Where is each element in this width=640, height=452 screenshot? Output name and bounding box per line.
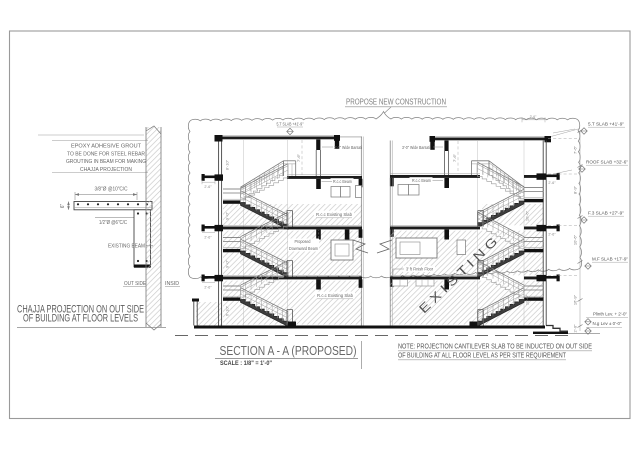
svg-text:Downward Beam: Downward Beam <box>289 246 318 251</box>
svg-text:7'-6": 7'-6" <box>452 153 457 162</box>
svg-text:R.c.c Existing Slab: R.c.c Existing Slab <box>316 212 353 217</box>
svg-text:2'-6": 2'-6" <box>204 286 212 290</box>
svg-text:TO BE DONE FOR STEEL REBAR: TO BE DONE FOR STEEL REBAR <box>67 151 145 157</box>
svg-text:2'-6": 2'-6" <box>204 236 212 240</box>
svg-text:2'-6": 2'-6" <box>548 181 556 185</box>
svg-text:6'-10": 6'-10" <box>225 305 230 316</box>
svg-text:3' ft Finish Floor: 3' ft Finish Floor <box>406 267 434 272</box>
svg-text:2'-6": 2'-6" <box>530 115 538 119</box>
svg-text:R.c.c Beam: R.c.c Beam <box>412 178 431 183</box>
svg-text:5.T SLAB +41'-9": 5.T SLAB +41'-9" <box>277 122 304 127</box>
svg-text:CHAJJA PROJECTION: CHAJJA PROJECTION <box>80 167 132 173</box>
svg-text:1/2"Ø @6"C/C: 1/2"Ø @6"C/C <box>99 220 127 226</box>
svg-text:F.3 SLAB +27'-9": F.3 SLAB +27'-9" <box>588 211 624 216</box>
svg-text:10'-6": 10'-6" <box>573 234 578 245</box>
svg-text:9'-0": 9'-0" <box>225 259 230 268</box>
svg-text:N.g Lev ± 0'-0": N.g Lev ± 0'-0" <box>593 321 622 326</box>
svg-text:7'-6": 7'-6" <box>296 153 301 162</box>
svg-text:OF BUILDING AT ALL FLOOR LEVEL: OF BUILDING AT ALL FLOOR LEVEL AS PER SI… <box>398 353 567 360</box>
svg-text:3'-0" Wide Barsati: 3'-0" Wide Barsati <box>334 145 362 150</box>
svg-text:NOTE: PROJECTION CANTILEVER SL: NOTE: PROJECTION CANTILEVER SLAB TO BE I… <box>398 344 592 351</box>
svg-text:INSID: INSID <box>165 281 179 287</box>
svg-text:2'-6": 2'-6" <box>204 185 212 189</box>
svg-text:SECTION A - A (PROPOSED): SECTION A - A (PROPOSED) <box>220 343 357 358</box>
svg-text:EPOXY ADHESIVE GROUT: EPOXY ADHESIVE GROUT <box>71 144 141 150</box>
svg-text:16'-9": 16'-9" <box>573 294 578 305</box>
svg-text:Proposed: Proposed <box>295 239 312 244</box>
svg-text:7'-6": 7'-6" <box>573 145 578 154</box>
svg-text:3'-0" Wide Barsati: 3'-0" Wide Barsati <box>402 145 430 150</box>
svg-text:Plinth Lev. + 2'-0": Plinth Lev. + 2'-0" <box>593 311 627 316</box>
svg-text:2'-0": 2'-0" <box>573 324 578 333</box>
svg-text:9'-0": 9'-0" <box>225 211 230 220</box>
svg-text:OUT SIDE: OUT SIDE <box>124 281 146 287</box>
svg-text:M.F SLAB +17'-9": M.F SLAB +17'-9" <box>592 257 628 262</box>
svg-text:SCALE : 1/8" = 1'-0": SCALE : 1/8" = 1'-0" <box>220 360 272 367</box>
svg-text:3/8"Ø @10"C/C: 3/8"Ø @10"C/C <box>95 187 128 193</box>
svg-text:PROPOSE NEW CONSTRUCTION: PROPOSE NEW CONSTRUCTION <box>346 97 446 107</box>
svg-text:8'-10": 8'-10" <box>225 159 230 170</box>
svg-text:OF BUILDING AT FLOOR LEVELS: OF BUILDING AT FLOOR LEVELS <box>23 313 138 325</box>
svg-text:ROOF SLAB +32'-6": ROOF SLAB +32'-6" <box>586 160 628 165</box>
svg-text:10'-6": 10'-6" <box>525 294 530 305</box>
svg-text:6": 6" <box>60 204 66 209</box>
svg-text:10'-6": 10'-6" <box>525 210 530 221</box>
svg-text:EXISTING BEAM: EXISTING BEAM <box>108 244 145 250</box>
svg-text:GROUTING IN BEAM FOR MAKING: GROUTING IN BEAM FOR MAKING <box>66 159 146 165</box>
svg-text:8'-9": 8'-9" <box>573 185 578 194</box>
svg-text:2'-6": 2'-6" <box>548 233 556 237</box>
svg-text:R.c.c Beam: R.c.c Beam <box>333 179 352 184</box>
svg-text:5.T SLAB +41'-9": 5.T SLAB +41'-9" <box>588 122 624 127</box>
svg-text:R.c.c Existing Slab: R.c.c Existing Slab <box>317 293 354 298</box>
